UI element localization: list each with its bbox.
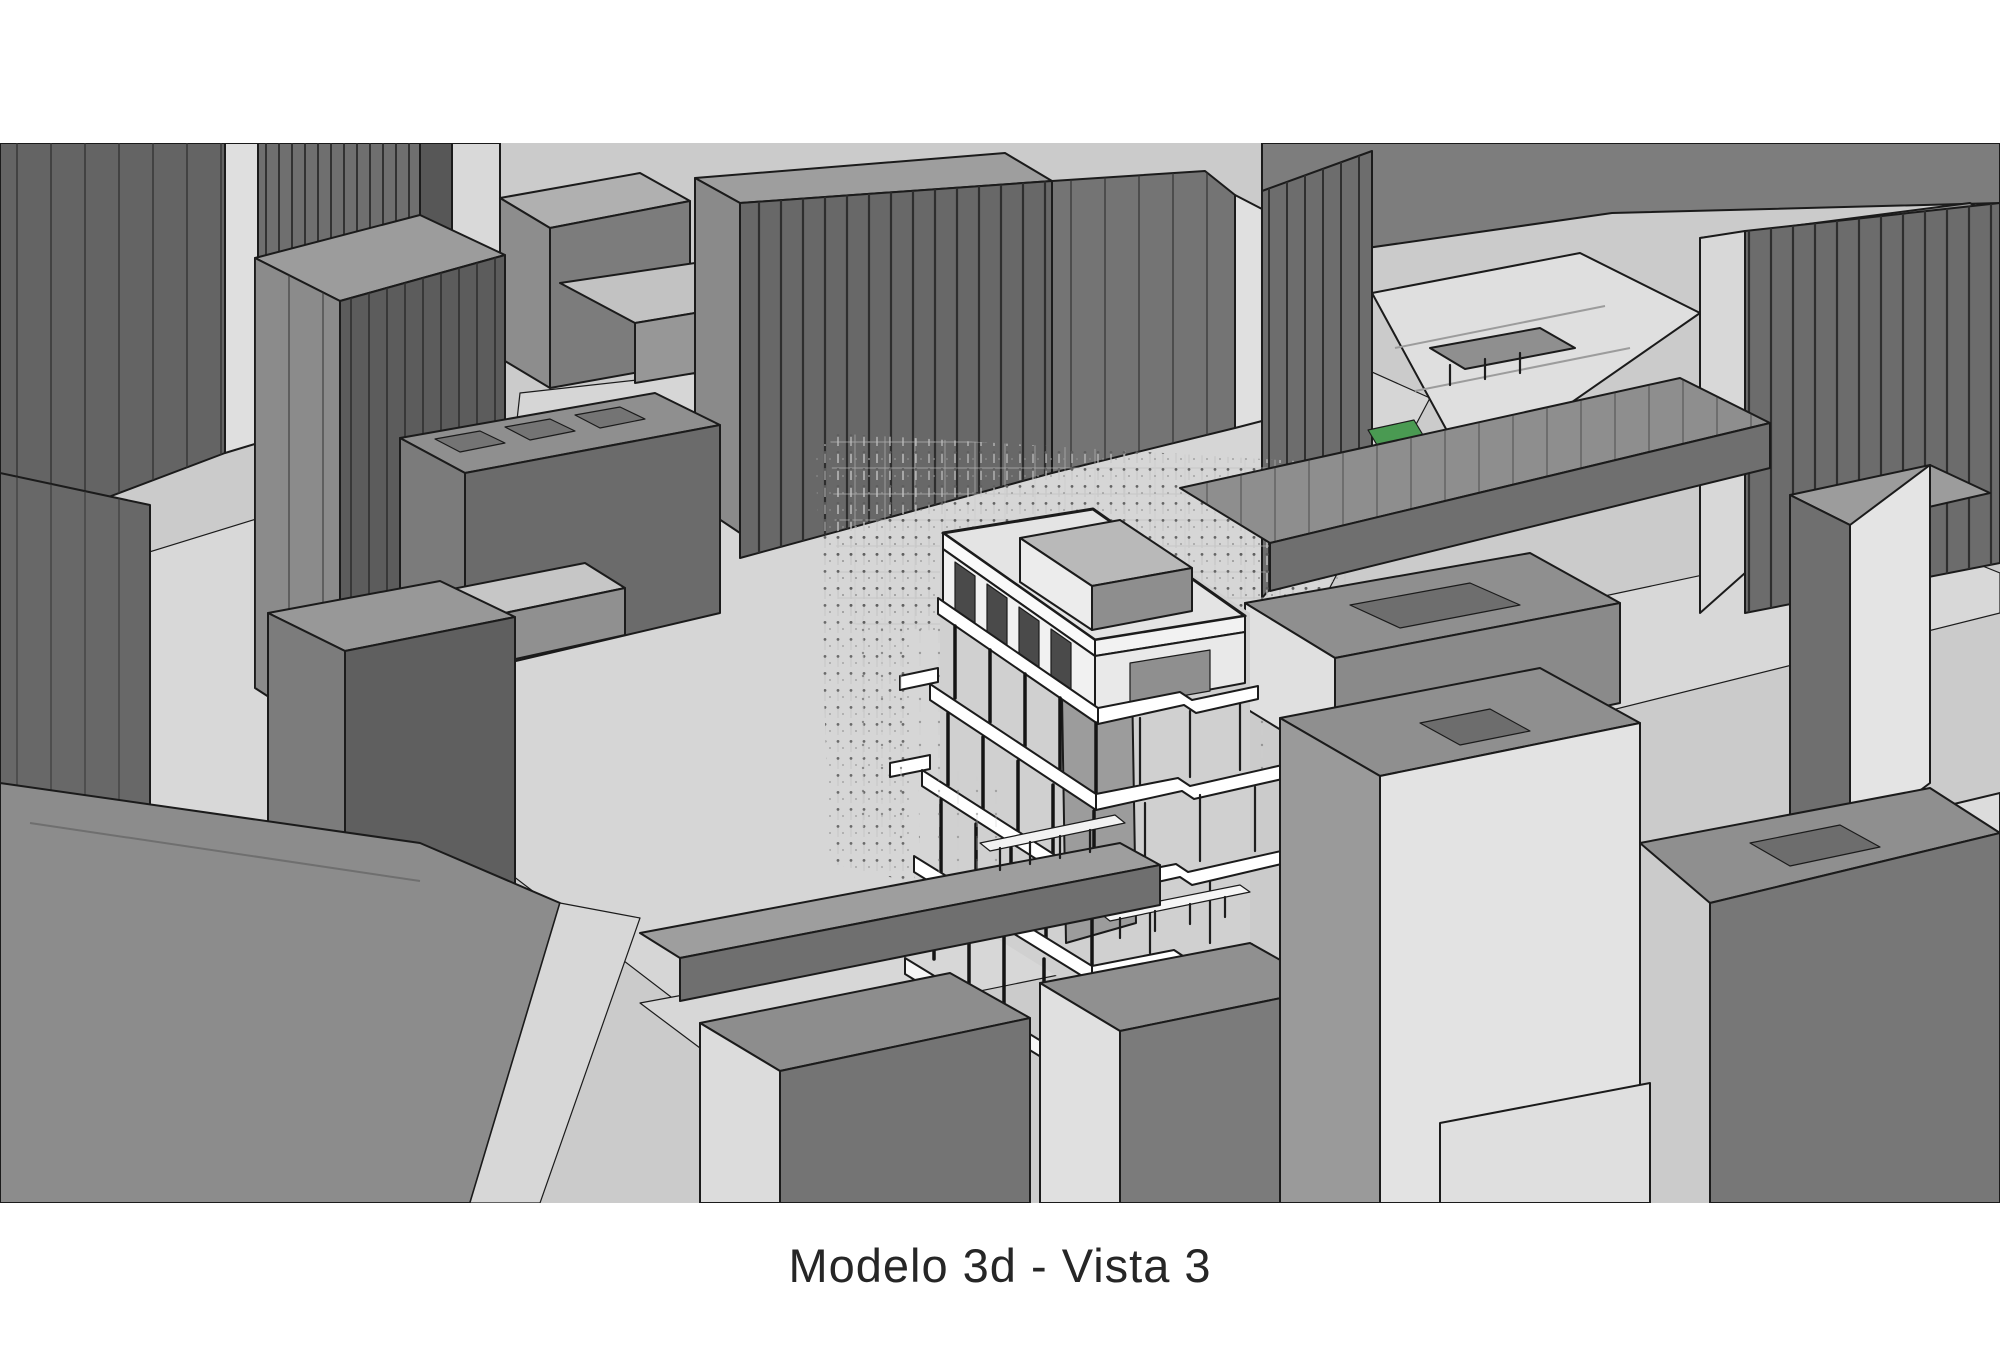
model-render-3d xyxy=(0,143,2000,1203)
figure-caption: Modelo 3d - Vista 3 xyxy=(0,1238,2000,1293)
page: Modelo 3d - Vista 3 xyxy=(0,0,2000,1350)
city-model-svg xyxy=(0,143,2000,1203)
